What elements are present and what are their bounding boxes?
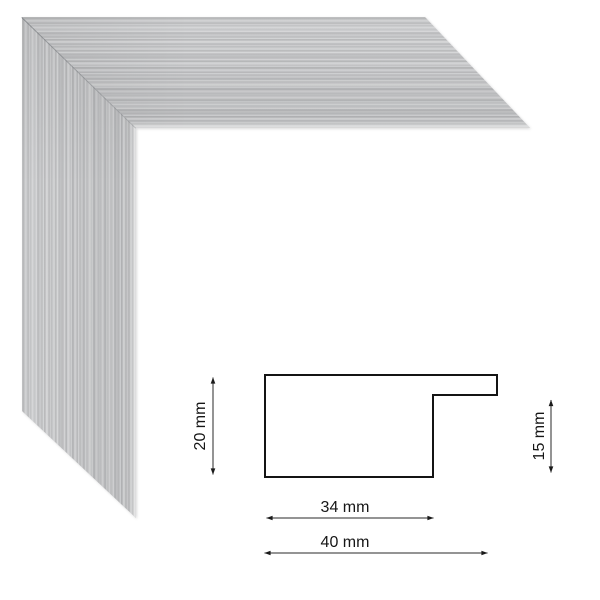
dimension-body-width-34mm: 34 mm: [267, 499, 434, 518]
product-image-canvas: 20 mm 15 mm 34 mm 40 mm: [0, 0, 600, 600]
profile-outline: [265, 375, 497, 477]
dimension-body-width-label: 34 mm: [321, 499, 370, 516]
dimension-total-width-label: 40 mm: [321, 534, 370, 551]
dimension-rabbet-15mm: 15 mm: [531, 400, 551, 473]
dimension-rabbet-label: 15 mm: [531, 412, 548, 461]
profile-cross-section-diagram: 20 mm 15 mm 34 mm 40 mm: [0, 0, 600, 600]
dimension-total-width-40mm: 40 mm: [265, 534, 488, 553]
dimension-height-label: 20 mm: [192, 402, 209, 451]
dimension-height-20mm: 20 mm: [192, 378, 213, 475]
